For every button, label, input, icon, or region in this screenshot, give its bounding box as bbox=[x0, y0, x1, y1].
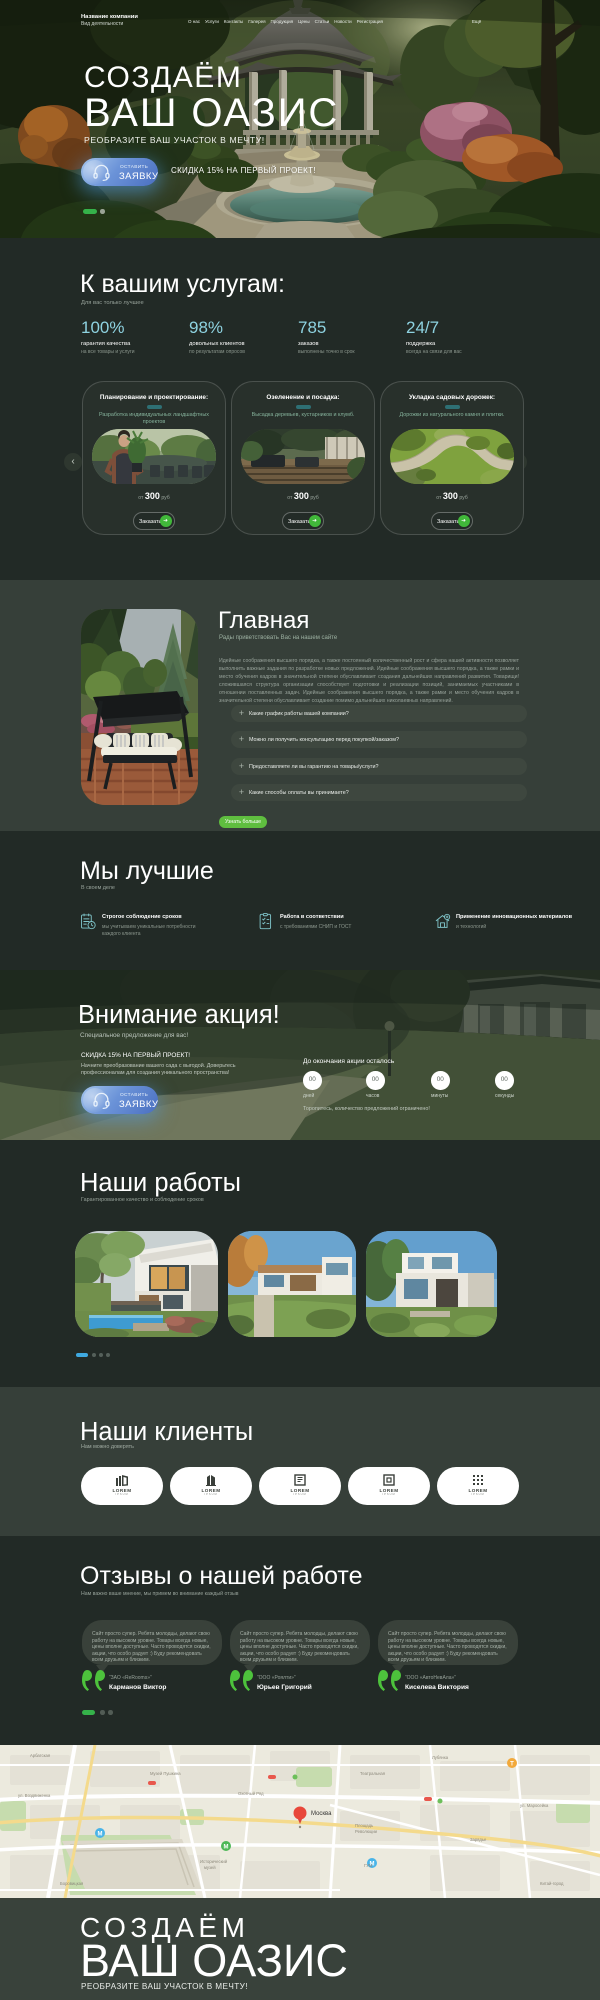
svg-text:Исторический: Исторический bbox=[200, 1859, 228, 1864]
svg-text:M: M bbox=[224, 1845, 229, 1851]
svg-text:ул. Маросейка: ул. Маросейка bbox=[520, 1803, 549, 1808]
svg-text:Театральная: Театральная bbox=[360, 1771, 385, 1776]
svg-text:Москва: Москва bbox=[311, 1811, 332, 1817]
svg-text:Арбатская: Арбатская bbox=[30, 1753, 50, 1758]
svg-text:Зарядье: Зарядье bbox=[470, 1837, 487, 1842]
svg-text:ГУМ: ГУМ bbox=[364, 1863, 373, 1868]
svg-text:Китай-город: Китай-город bbox=[540, 1881, 564, 1886]
svg-text:Охотный Ряд: Охотный Ряд bbox=[238, 1791, 264, 1796]
svg-text:музей: музей bbox=[204, 1865, 216, 1870]
svg-text:Лубянка: Лубянка bbox=[432, 1755, 449, 1760]
svg-text:Музей Пушкина: Музей Пушкина bbox=[150, 1771, 181, 1776]
svg-text:T: T bbox=[510, 1762, 514, 1768]
svg-text:Революции: Революции bbox=[355, 1829, 378, 1834]
svg-text:ул. Воздвиженка: ул. Воздвиженка bbox=[18, 1793, 51, 1798]
svg-text:M: M bbox=[98, 1832, 103, 1838]
svg-text:Площадь: Площадь bbox=[355, 1823, 374, 1828]
svg-text:Боровицкая: Боровицкая bbox=[60, 1881, 83, 1886]
